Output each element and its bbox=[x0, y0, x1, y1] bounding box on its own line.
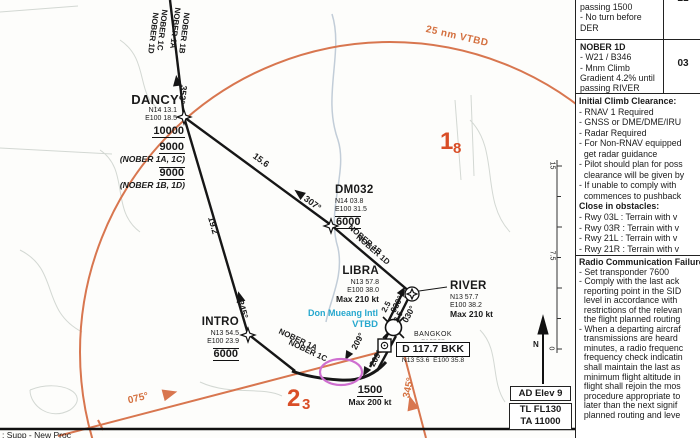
altitude-restriction: 10000 bbox=[152, 126, 185, 138]
navaid-coords: N13 53.6 E100 35.8 bbox=[396, 358, 470, 365]
altitude-restriction: 6000 bbox=[213, 348, 239, 361]
tl-ta-box: TL FL130 TA 11000 bbox=[509, 403, 572, 430]
runway-value: 21 bbox=[664, 0, 700, 4]
waypoint-name: DM032 bbox=[335, 185, 374, 197]
speed-restriction: Max 210 kt bbox=[450, 310, 493, 319]
waypoint-intro-block: INTRO N13 54.5 E100 23.9 6000 bbox=[159, 317, 239, 361]
panel-line: procedure appropriate to bbox=[579, 392, 700, 402]
navaid-block: BANGKOK −··· −·− −·− D 117.7 BKK N13 53.… bbox=[396, 331, 470, 364]
footer-note: : Supp - New Proc bbox=[2, 431, 71, 438]
panel-section-header: Initial Climb Clearance: bbox=[579, 96, 700, 107]
panel-line: - Radar Required bbox=[579, 128, 700, 139]
ad-elev-value: AD Elev 9 bbox=[519, 388, 563, 399]
transition-altitude: TA 11000 bbox=[510, 416, 571, 428]
waypoint-name: INTRO bbox=[159, 317, 239, 329]
panel-line: restrictions of the relevan bbox=[579, 306, 700, 316]
scale-bar bbox=[557, 160, 562, 353]
panel-line: - Rwy 21L : Terrain with v bbox=[579, 233, 700, 244]
waypoint-lon: E100 31.5 bbox=[335, 206, 374, 213]
grid-mora-18-big: 1 bbox=[440, 130, 453, 154]
panel-line: get radar guidance bbox=[579, 149, 700, 160]
panel-section-radio: Radio Communication Failure: - Set trans… bbox=[576, 255, 700, 420]
runway-cell: 03 bbox=[663, 40, 700, 93]
sid-chart-page: 25 nm VTBD NOBER 1D NOBER 1C NOBER 1A NO… bbox=[0, 0, 700, 438]
waypoint-dancy-block: DANCY N14 13.1 E100 18.5 10000 9000 (NOB… bbox=[85, 93, 185, 189]
navaid-morse: −··· −·− −·− bbox=[396, 338, 470, 341]
panel-line: flight shall rejoin the mos bbox=[579, 382, 700, 392]
waypoint-dm032-block: DM032 N14 03.8 E100 31.5 6000 bbox=[335, 185, 374, 229]
runway-value: 03 bbox=[664, 58, 700, 69]
runway-cell: 21 bbox=[663, 0, 700, 39]
waypoint-lon: E100 38.0 bbox=[299, 287, 379, 294]
panel-row-1: passing 1500 - No turn before DER 21 bbox=[576, 0, 700, 40]
waypoint-lon: E100 23.9 bbox=[159, 338, 239, 345]
waypoint-symbol-intro bbox=[241, 328, 255, 342]
waypoint-lon: E100 18.5 bbox=[85, 115, 185, 122]
panel-section-header: Radio Communication Failure: bbox=[579, 258, 700, 268]
altitude-note: (NOBER 1A, 1C) bbox=[85, 155, 185, 164]
panel-line: - If unable to comply with bbox=[579, 180, 700, 191]
waypoint-name: LIBRA bbox=[299, 266, 379, 278]
grid-mora-23-small: 3 bbox=[302, 397, 310, 412]
panel-section-header: Close in obstacles: bbox=[579, 201, 700, 212]
panel-line: - Rwy 03R : Terrain with v bbox=[579, 223, 700, 234]
panel-line: - Rwy 03L : Terrain with v bbox=[579, 212, 700, 223]
navaid-frequency: D 117.7 BKK bbox=[396, 342, 470, 357]
waypoint-river-block: RIVER N13 57.7 E100 38.2 Max 210 kt bbox=[450, 281, 493, 318]
panel-line: minutes, a radio frequenc bbox=[579, 344, 700, 354]
panel-line: - Pilot should plan for poss bbox=[579, 159, 700, 170]
waypoint-lat: N14 13.1 bbox=[85, 107, 185, 114]
panel-line: - RNAV 1 Required bbox=[579, 107, 700, 118]
ad-elev-box: AD Elev 9 bbox=[510, 386, 571, 401]
panel-line: planned routing and leve bbox=[579, 411, 700, 421]
waypoint-lat: N13 57.8 bbox=[299, 279, 379, 286]
procedure-text-panel: passing 1500 - No turn before DER 21 NOB… bbox=[575, 0, 700, 438]
altitude-restriction: 9000 bbox=[159, 142, 185, 154]
panel-line: reporting point in the SID bbox=[579, 287, 700, 297]
altitude-restriction: 9000 bbox=[159, 167, 185, 180]
panel-line: transmissions are heard bbox=[579, 334, 700, 344]
transition-level: TL FL130 bbox=[510, 404, 571, 416]
panel-line: level in accordance with bbox=[579, 296, 700, 306]
waypoint-lat: N14 03.8 bbox=[335, 198, 374, 205]
waypoint-name: RIVER bbox=[450, 281, 493, 293]
altitude-restriction: 1500 bbox=[357, 385, 383, 397]
grid-mora-23-big: 2 bbox=[287, 387, 300, 411]
panel-line: - GNSS or DME/DME/IRU bbox=[579, 117, 700, 128]
grid-mora-18-small: 8 bbox=[453, 141, 461, 156]
waypoint-libra-block: LIBRA N13 57.8 E100 38.0 Max 210 kt bbox=[299, 266, 379, 303]
speed-restriction: Max 200 kt bbox=[335, 398, 405, 407]
waypoint-name: DANCY bbox=[85, 93, 185, 106]
panel-line: - Set transponder 7600 bbox=[579, 268, 700, 278]
altitude-note: (NOBER 1B, 1D) bbox=[85, 181, 185, 190]
panel-line: - When a departing aircraf bbox=[579, 325, 700, 335]
airport-name: Don Mueang Intl bbox=[288, 309, 378, 318]
waypoint-lat: N13 54.5 bbox=[159, 330, 239, 337]
panel-line: shall maintain the last as bbox=[579, 363, 700, 373]
panel-line: - Rwy 21R : Terrain with v bbox=[579, 244, 700, 255]
scale-label-75: 7.5 bbox=[548, 251, 555, 261]
panel-line: later than the next signif bbox=[579, 401, 700, 411]
speed-restriction: Max 210 kt bbox=[299, 295, 379, 304]
waypoint-lon: E100 38.2 bbox=[450, 302, 493, 309]
panel-line: the flight planned routing bbox=[579, 315, 700, 325]
panel-line: commences to pushback bbox=[579, 191, 700, 202]
waypoint-lat: N13 57.7 bbox=[450, 294, 493, 301]
scale-label-15: 15 bbox=[548, 162, 555, 170]
restriction-1500-block: 1500 Max 200 kt bbox=[335, 381, 405, 407]
airport-name-block: Don Mueang Intl VTBD bbox=[288, 309, 378, 330]
panel-line: frequency check indicatin bbox=[579, 353, 700, 363]
altitude-restriction: 6000 bbox=[335, 216, 361, 229]
airport-icao: VTBD bbox=[288, 320, 378, 330]
panel-line: clearance will be given by bbox=[579, 170, 700, 181]
panel-line: minimum flight altitude in bbox=[579, 373, 700, 383]
panel-line: - Comply with the last ack bbox=[579, 277, 700, 287]
north-label: N bbox=[533, 341, 539, 349]
panel-line: - For Non-RNAV equipped bbox=[579, 138, 700, 149]
scale-label-0: 0 bbox=[547, 347, 554, 351]
panel-row-2: NOBER 1D - W21 / B346 - Mnm Climb Gradie… bbox=[576, 40, 700, 94]
panel-section-climb: Initial Climb Clearance: - RNAV 1 Requir… bbox=[576, 94, 700, 255]
